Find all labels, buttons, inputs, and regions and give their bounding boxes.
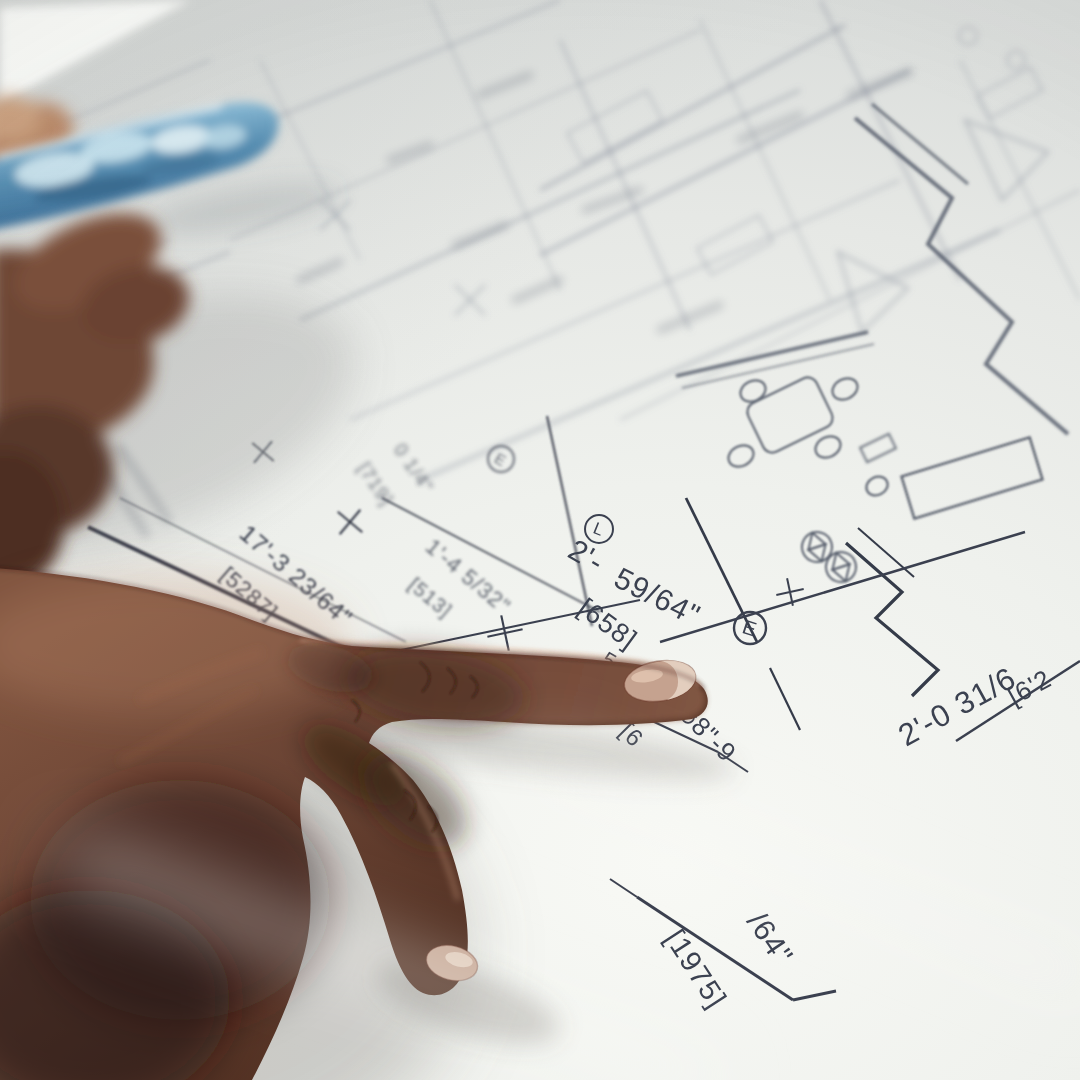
dimension-tick xyxy=(327,499,372,544)
door-swing-symbol xyxy=(838,252,908,332)
grid-bubble-L: L xyxy=(585,515,613,543)
door-swing-symbol xyxy=(965,120,1048,200)
plan-chair xyxy=(737,376,769,405)
plan-desk xyxy=(901,437,1042,518)
dimension-metric-text: [719] xyxy=(354,458,398,509)
plan-chair xyxy=(725,441,757,470)
plan-chair xyxy=(863,473,891,499)
sheet-edge-highlight xyxy=(0,0,190,104)
grid-bubble-E2: E xyxy=(488,446,514,472)
photo-scene: 2'- 59/64" [658] 5 ⌀8"-9 [6 17'-3 23/64"… xyxy=(0,0,1080,1080)
dimension-text: 0 1/4" xyxy=(390,439,438,496)
plan-chair xyxy=(829,374,861,403)
dimension-text: /64" xyxy=(741,906,800,971)
photo-canvas: 2'- 59/64" [658] 5 ⌀8"-9 [6 17'-3 23/64"… xyxy=(0,0,1080,1080)
grid-bubble-E: E xyxy=(734,612,766,644)
dimension-text: 2'- xyxy=(563,533,610,579)
paper-sheet-corner xyxy=(0,0,190,104)
grid-bubble-letter: E xyxy=(492,449,510,469)
grid-bubble-letter: E xyxy=(740,615,760,640)
fixture-symbol xyxy=(798,528,860,586)
plan-chair xyxy=(812,432,844,461)
dimension-metric-text: [513] xyxy=(404,573,456,622)
plan-table-and-chairs xyxy=(725,374,891,499)
grid-bubble-letter: L xyxy=(590,519,607,541)
plan-table xyxy=(744,374,836,456)
zigzag-wall xyxy=(846,543,938,696)
